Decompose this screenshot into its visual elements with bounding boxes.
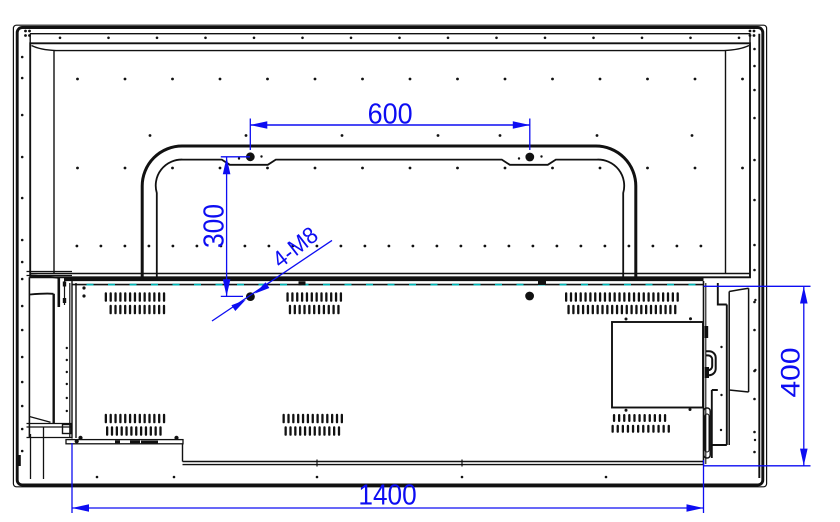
svg-text:400: 400 [775, 348, 805, 398]
svg-text:300: 300 [198, 204, 230, 248]
svg-text:600: 600 [368, 98, 413, 130]
svg-text:1400: 1400 [358, 480, 416, 512]
